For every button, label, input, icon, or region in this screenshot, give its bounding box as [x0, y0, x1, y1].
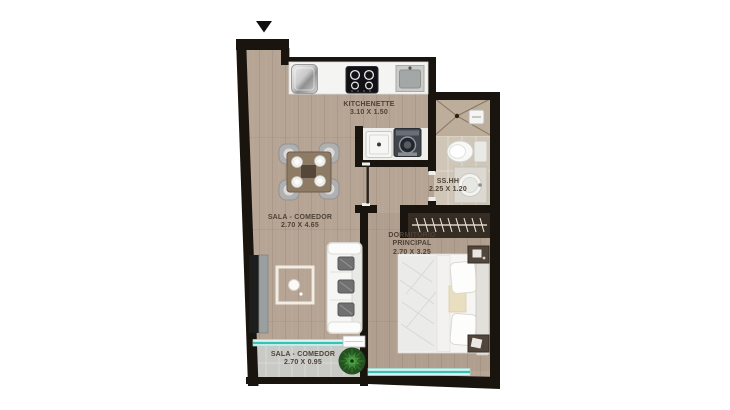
nightstand — [468, 246, 489, 263]
wall-bath-west-upper — [428, 100, 436, 172]
wall-entry-jog — [281, 39, 289, 65]
wall-bedroom-north — [400, 205, 497, 213]
coffee-table — [289, 280, 300, 291]
room-label-balcony: SALA - COMEDOR 2.70 X 0.95 — [262, 351, 344, 368]
kitchen-sink — [396, 66, 424, 92]
room-dims: 2.70 X 3.25 — [377, 249, 447, 257]
wall-bath-top — [428, 92, 500, 100]
room-label-dormitorio: DORMITORIO PRINCIPAL 2.70 X 3.25 — [377, 232, 447, 257]
tv-console — [249, 255, 268, 333]
dining-set — [279, 143, 339, 200]
washer — [366, 132, 392, 158]
room-label-sshh: SS.HH 2.25 X 1.20 — [420, 178, 476, 195]
bedroom-window — [368, 369, 470, 376]
wall-balcony-bottom — [246, 377, 362, 384]
room-label-sala-comedor: SALA - COMEDOR 2.70 X 4.65 — [259, 214, 341, 231]
room-dims: 2.70 X 0.95 — [262, 359, 344, 367]
wall-laundry-west — [355, 126, 363, 167]
refrigerator — [292, 65, 318, 94]
shower-drain-icon — [455, 114, 459, 118]
room-label-kitchenette: KITCHENETTE 3.10 X 1.50 — [330, 101, 408, 118]
tv — [249, 255, 259, 333]
room-dims: 2.25 X 1.20 — [420, 186, 476, 194]
room-name: SALA - COMEDOR — [262, 351, 344, 359]
floor-plan-page: KITCHENETTE 3.10 X 1.50 SALA - COMEDOR 2… — [0, 0, 730, 410]
toilet — [447, 141, 487, 162]
room-name: SS.HH — [420, 178, 476, 186]
room-name: KITCHENETTE — [330, 101, 408, 109]
balcony-door-frame — [343, 336, 365, 347]
room-name: PRINCIPAL — [377, 240, 447, 248]
dryer — [394, 129, 421, 157]
shower — [434, 98, 492, 136]
floor-plan-canvas — [0, 0, 730, 410]
cooktop — [346, 67, 378, 94]
wall-bedroom-north-stub — [355, 205, 377, 213]
room-dims: 2.70 X 4.65 — [259, 222, 341, 230]
sink-faucet-icon — [408, 66, 411, 69]
door-leaf — [367, 166, 369, 204]
room-name: SALA - COMEDOR — [259, 214, 341, 222]
sofa — [327, 243, 362, 334]
entry-arrow-icon — [256, 21, 272, 33]
room-dims: 3.10 X 1.50 — [330, 109, 408, 117]
room-name: DORMITORIO — [377, 232, 447, 240]
wall-right — [490, 92, 500, 388]
faucet-icon — [478, 183, 482, 187]
pillow — [450, 261, 478, 294]
nightstand — [468, 335, 489, 352]
